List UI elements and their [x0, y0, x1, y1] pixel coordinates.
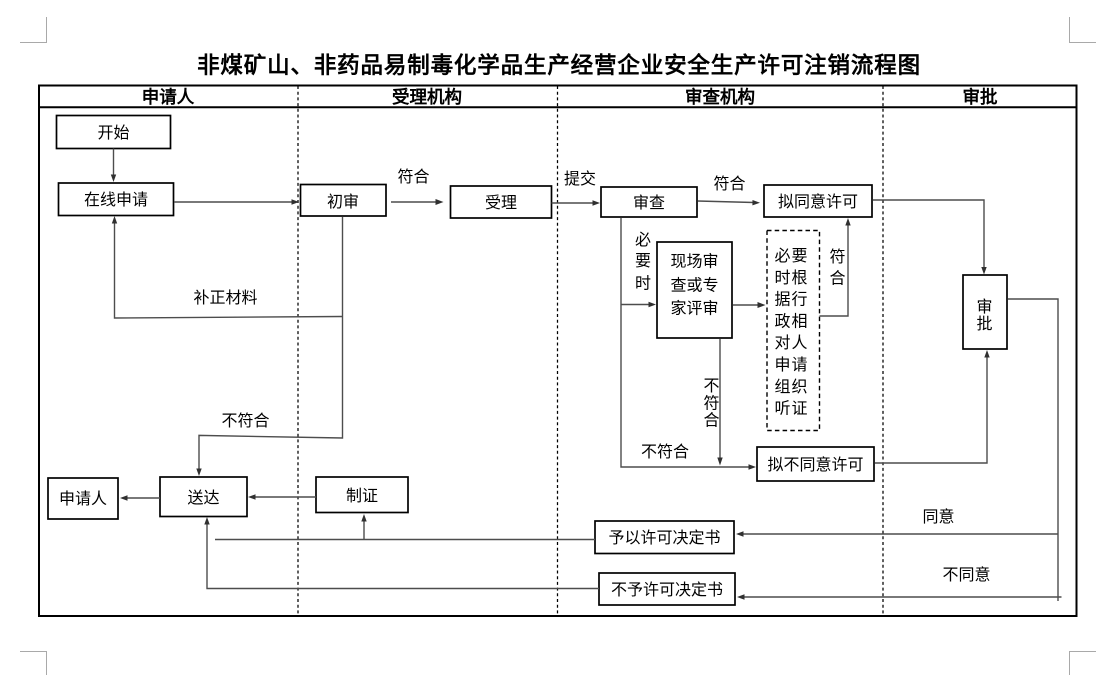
- svg-text:合: 合: [829, 270, 845, 288]
- svg-text:审查机构: 审查机构: [685, 87, 755, 107]
- svg-text:送达: 送达: [187, 489, 219, 507]
- svg-text:政相: 政相: [774, 312, 808, 330]
- svg-text:不同意: 不同意: [942, 565, 990, 584]
- svg-text:申请: 申请: [774, 356, 808, 374]
- svg-text:查或专: 查或专: [670, 277, 718, 295]
- svg-text:拟不同意许可: 拟不同意许可: [767, 455, 863, 474]
- svg-text:符合: 符合: [713, 175, 745, 193]
- svg-text:符: 符: [703, 395, 719, 413]
- svg-text:在线申请: 在线申请: [84, 191, 148, 209]
- svg-text:拟同意许可: 拟同意许可: [778, 192, 858, 211]
- svg-text:不: 不: [703, 378, 719, 395]
- svg-text:组织: 组织: [774, 378, 808, 396]
- svg-text:批: 批: [976, 315, 992, 333]
- svg-text:符合: 符合: [397, 168, 429, 186]
- svg-text:不符合: 不符合: [641, 443, 689, 461]
- svg-text:要: 要: [635, 252, 651, 270]
- svg-text:必要: 必要: [774, 247, 808, 265]
- svg-text:予以许可决定书: 予以许可决定书: [608, 529, 720, 547]
- svg-text:时: 时: [635, 275, 651, 293]
- svg-text:对人: 对人: [774, 334, 808, 352]
- svg-text:开始: 开始: [97, 124, 129, 142]
- svg-text:申请人: 申请人: [59, 490, 107, 508]
- svg-text:制证: 制证: [346, 487, 378, 505]
- svg-text:家评审: 家评审: [670, 300, 718, 318]
- svg-text:不符合: 不符合: [221, 412, 269, 430]
- svg-text:现场审: 现场审: [670, 253, 718, 271]
- svg-text:非煤矿山、非药品易制毒化学品生产经营企业安全生产许可注销流程: 非煤矿山、非药品易制毒化学品生产经营企业安全生产许可注销流程图: [197, 52, 921, 78]
- svg-text:受理: 受理: [485, 194, 517, 212]
- svg-text:审批: 审批: [963, 87, 998, 107]
- svg-text:申请人: 申请人: [142, 87, 195, 107]
- svg-text:符: 符: [829, 248, 845, 266]
- svg-text:听证: 听证: [774, 400, 808, 418]
- svg-text:合: 合: [703, 412, 719, 430]
- svg-text:审: 审: [976, 298, 992, 316]
- svg-text:必: 必: [635, 231, 651, 249]
- svg-text:审查: 审查: [633, 194, 665, 212]
- svg-text:据行: 据行: [774, 291, 808, 309]
- svg-text:同意: 同意: [922, 507, 954, 526]
- svg-text:受理机构: 受理机构: [392, 87, 462, 107]
- svg-text:补正材料: 补正材料: [193, 289, 257, 307]
- svg-text:提交: 提交: [564, 170, 596, 188]
- svg-text:时根: 时根: [774, 269, 808, 287]
- svg-text:初审: 初审: [327, 193, 359, 211]
- svg-text:不予许可决定书: 不予许可决定书: [611, 581, 723, 599]
